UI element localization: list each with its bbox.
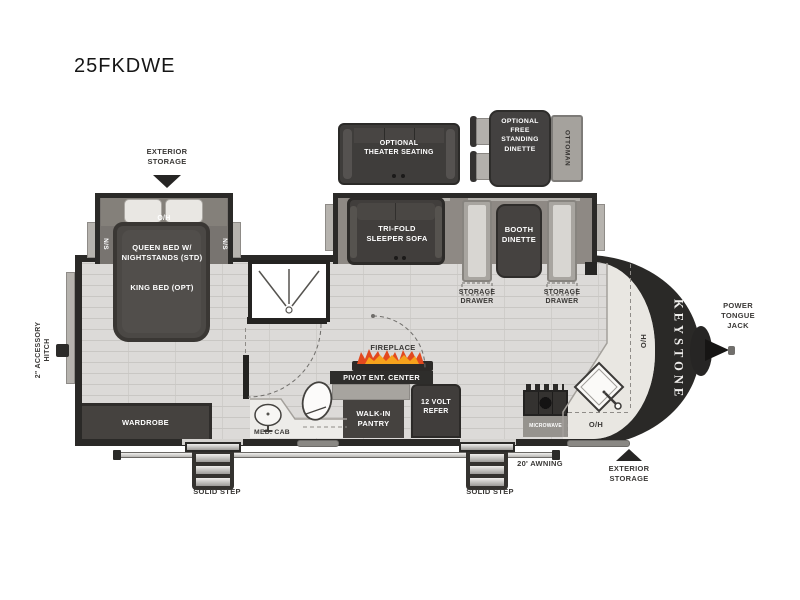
pantry-label: WALK-IN PANTRY	[343, 409, 404, 429]
bath-wall-left	[243, 355, 249, 399]
bench-cushion	[468, 205, 486, 277]
ent-center-cabinet	[332, 384, 410, 400]
living-slide-tab-right	[596, 204, 605, 251]
ottoman: OTTOMAN	[551, 115, 583, 182]
pivot-ent-center-label: PIVOT ENT. CENTER	[330, 371, 433, 384]
exterior-storage-door	[567, 440, 630, 447]
refrigerator-label: 12 VOLT REFER	[411, 398, 461, 416]
theater-cupholder-2	[401, 174, 405, 178]
step-right-top-tread	[459, 442, 515, 452]
kitchen-overhead-side-label: O/H	[639, 327, 651, 355]
wall-stub	[585, 262, 597, 275]
exterior-storage-rear-arrow-icon	[616, 449, 642, 461]
tongue-jack-tip	[728, 346, 735, 355]
wardrobe-label: WARDROBE	[122, 418, 169, 428]
sofa-cupholder-1	[394, 256, 398, 260]
sofa-seam	[395, 203, 396, 220]
accessory-hitch-label: 2" ACCESSORY HITCH	[34, 300, 54, 400]
front-wall-trim	[66, 272, 75, 384]
ottoman-label: OTTOMAN	[564, 130, 571, 166]
step-tread	[470, 466, 504, 474]
booth-bench-right	[547, 200, 577, 282]
cooktop	[523, 390, 568, 416]
fireplace-label: FIREPLACE	[343, 343, 443, 353]
accessory-hitch-receiver	[56, 344, 69, 357]
floorplan-canvas: 25FKDWE EXTERIOR STORAGE 2" ACCESSORY HI…	[0, 0, 800, 600]
tongue-jack-cone	[705, 339, 729, 361]
bedroom-slide-tab-right	[232, 222, 241, 258]
kitchen-overhead-label: O/H	[577, 420, 615, 430]
brand-logo-text: KEYSTONE	[671, 299, 686, 400]
shower	[248, 260, 330, 322]
bed-label: QUEEN BED W/ NIGHTSTANDS (STD)	[118, 243, 206, 263]
storage-drawer-left-label: STORAGE DRAWER	[437, 288, 517, 306]
nightstand-right-label: N/S	[218, 234, 228, 254]
booth-label: BOOTH DINETTE	[493, 225, 545, 245]
microwave-label: MICROWAVE	[523, 416, 568, 437]
sofa-label: TRI-FOLD SLEEPER SOFA	[351, 224, 443, 244]
dinette-chair-2	[470, 151, 491, 182]
step-tread	[196, 478, 230, 486]
bench-cushion	[553, 205, 571, 277]
awning-cap-left	[113, 450, 121, 460]
nightstand-left-label: N/S	[99, 234, 109, 254]
theater-cupholder-1	[392, 174, 396, 178]
solid-step-left-label: SOLID STEP	[177, 487, 257, 497]
fireplace-mantel	[352, 361, 433, 371]
step-right-body	[466, 452, 508, 490]
theater-seating-label: OPTIONAL THEATER SEATING	[341, 139, 457, 157]
step-tread	[470, 454, 504, 462]
dinette-chair-1	[470, 116, 491, 147]
step-left-top-tread	[185, 442, 241, 452]
sofa-back-cushion	[357, 203, 435, 220]
model-title: 25FKDWE	[74, 55, 175, 78]
storage-drawer-right-label: STORAGE DRAWER	[522, 288, 602, 306]
pivot-ent-center: PIVOT ENT. CENTER	[330, 371, 433, 384]
wardrobe: WARDROBE	[82, 403, 212, 439]
power-tongue-jack-label: POWER TONGUE JACK	[707, 301, 769, 331]
step-left-body	[192, 452, 234, 490]
step-tread	[470, 478, 504, 486]
exterior-storage-front-label: EXTERIOR STORAGE	[117, 147, 217, 167]
bed-option-label: KING BED (OPT)	[118, 283, 206, 293]
exterior-storage-rear-label: EXTERIOR STORAGE	[589, 464, 669, 484]
awning-label: 20' AWNING	[500, 459, 580, 469]
microwave: MICROWAVE	[523, 416, 568, 437]
sofa-cupholder-2	[402, 256, 406, 260]
med-cab-label: MED. CAB	[242, 429, 302, 438]
brand-logo: KEYSTONE	[666, 300, 690, 400]
free-standing-dinette-label: OPTIONAL FREE STANDING DINETTE	[490, 117, 550, 154]
queen-bed	[113, 222, 210, 342]
utility-door	[297, 440, 339, 447]
solid-step-right-label: SOLID STEP	[450, 487, 530, 497]
booth-bench-left	[462, 200, 492, 282]
exterior-storage-front-arrow-icon	[153, 175, 181, 188]
step-tread	[196, 454, 230, 462]
step-tread	[196, 466, 230, 474]
